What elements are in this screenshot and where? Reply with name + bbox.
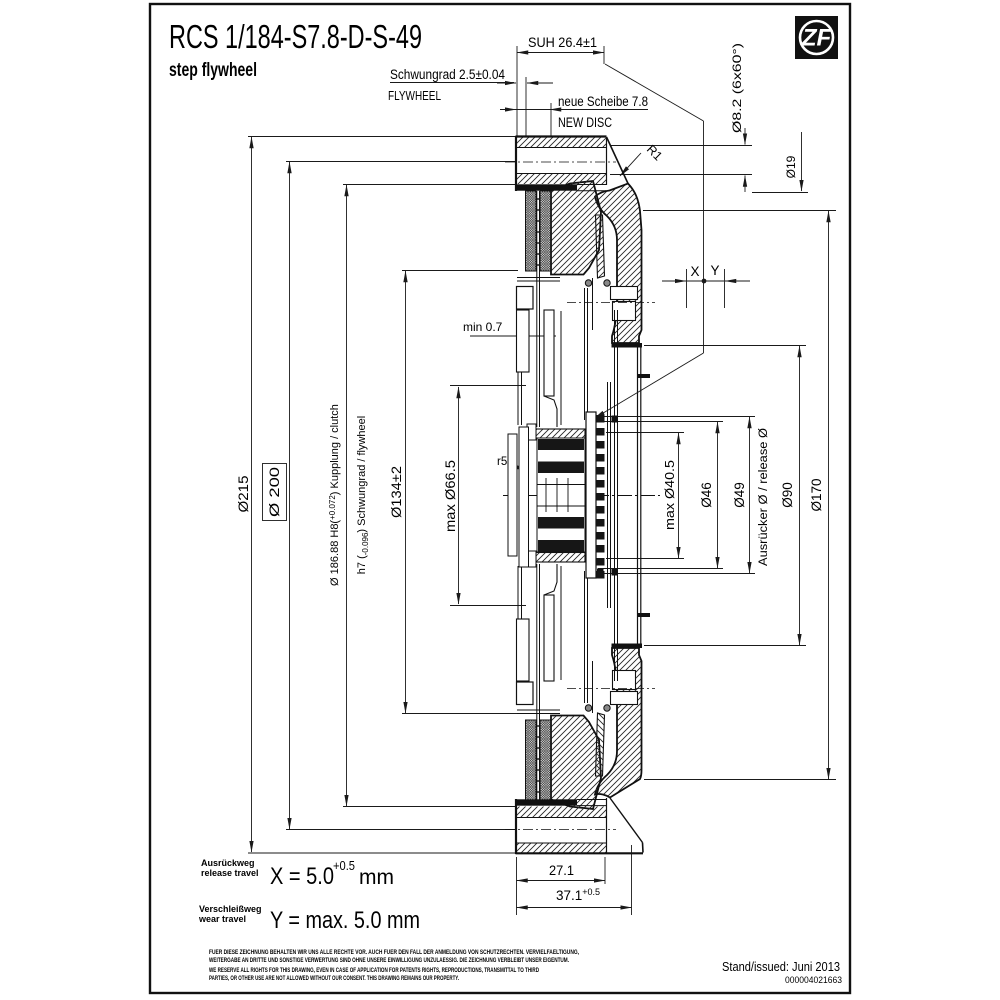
svg-text:NEW DISC: NEW DISC: [558, 115, 612, 130]
svg-text:FLYWHEEL: FLYWHEEL: [388, 88, 441, 103]
svg-text:Ø46: Ø46: [699, 482, 714, 508]
svg-text:RCS 1/184-S7.8-D-S-49: RCS 1/184-S7.8-D-S-49: [169, 18, 422, 55]
svg-text:Ø90: Ø90: [780, 482, 795, 508]
svg-text:Ø19: Ø19: [784, 155, 798, 178]
svg-text:max Ø66.5: max Ø66.5: [443, 460, 458, 532]
svg-text:wear travel: wear travel: [198, 914, 246, 924]
svg-text:neue Scheibe 7.8: neue Scheibe 7.8: [558, 94, 648, 109]
svg-text:Ø215: Ø215: [236, 476, 251, 513]
svg-text:Y = max. 5.0 mm: Y = max. 5.0 mm: [270, 907, 420, 934]
svg-text:min 0.7: min 0.7: [463, 320, 503, 334]
svg-text:Ø8.2 (6x60°): Ø8.2 (6x60°): [730, 43, 744, 133]
svg-text:000004021663: 000004021663: [785, 975, 842, 986]
svg-text:Schwungrad 2.5±0.04: Schwungrad 2.5±0.04: [390, 67, 505, 82]
svg-text:+0.5: +0.5: [333, 858, 355, 873]
svg-text:WE RESERVE ALL RIGHTS FOR THIS: WE RESERVE ALL RIGHTS FOR THIS DRAWING, …: [209, 968, 540, 974]
svg-text:Ø49: Ø49: [732, 482, 747, 508]
svg-text:Y: Y: [710, 263, 719, 278]
svg-text:PARTIES, OR OTHER USE ARE NOT: PARTIES, OR OTHER USE ARE NOT ALLOWED WI…: [209, 976, 459, 982]
svg-text:Ø134±2: Ø134±2: [389, 466, 404, 518]
svg-text:step flywheel: step flywheel: [169, 60, 257, 81]
svg-text:SUH 26.4±1: SUH 26.4±1: [528, 35, 597, 50]
svg-text:Ø 200: Ø 200: [267, 467, 282, 517]
svg-text:release travel: release travel: [201, 868, 259, 878]
svg-text:Ausrücker Ø / release Ø: Ausrücker Ø / release Ø: [758, 428, 770, 566]
svg-text:max Ø40.5: max Ø40.5: [662, 460, 677, 530]
svg-text:X = 5.0: X = 5.0: [270, 863, 334, 890]
svg-text:Ø 186.88 H8(+0.072) Kupplung /: Ø 186.88 H8(+0.072) Kupplung / clutch: [328, 404, 341, 586]
svg-text:mm: mm: [359, 866, 394, 889]
svg-text:WEITERGABE AN DRITTE UND SONST: WEITERGABE AN DRITTE UND SONSTIGE VERWER…: [209, 958, 569, 964]
svg-text:X: X: [690, 264, 699, 279]
svg-text:Ausrückweg: Ausrückweg: [201, 858, 255, 868]
svg-text:r5: r5: [497, 456, 507, 468]
svg-text:Stand/issued: Juni 2013: Stand/issued: Juni 2013: [722, 960, 840, 974]
svg-text:FUER DIESE ZEICHNUNG BEHALTEN: FUER DIESE ZEICHNUNG BEHALTEN WIR UNS AL…: [209, 950, 579, 956]
svg-text:Verschleißweg: Verschleißweg: [199, 904, 262, 914]
svg-text:27.1: 27.1: [549, 863, 574, 878]
svg-text:ZF: ZF: [801, 25, 833, 52]
svg-text:Ø170: Ø170: [809, 478, 824, 511]
